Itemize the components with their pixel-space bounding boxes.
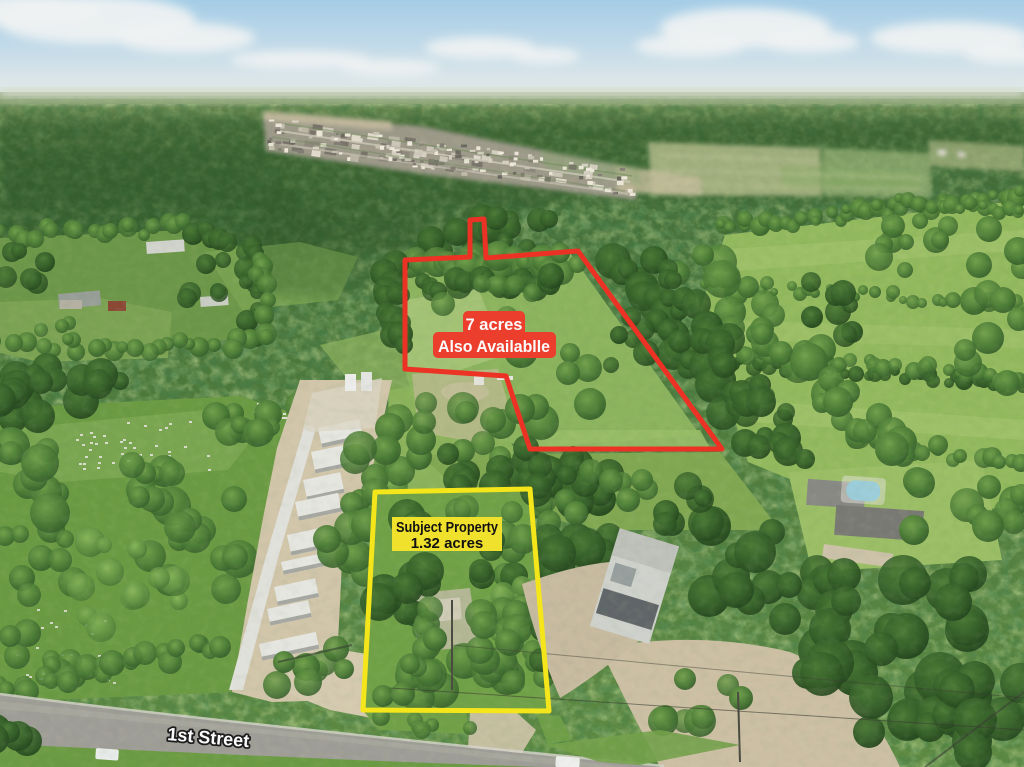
svg-text:Also Availablle: Also Availablle bbox=[438, 338, 550, 356]
svg-text:1.32 acres: 1.32 acres bbox=[411, 535, 484, 552]
svg-text:7 acres: 7 acres bbox=[466, 316, 523, 334]
svg-text:Subject Property: Subject Property bbox=[396, 519, 499, 536]
